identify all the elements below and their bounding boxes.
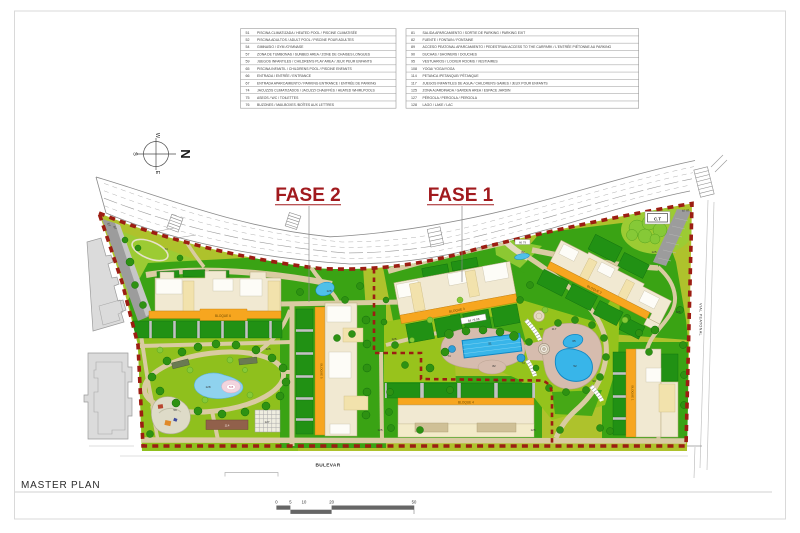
svg-text:PISCINA ADULTOS / ADULT POOL: PISCINA ADULTOS / ADULT POOL / PISCINE P…: [257, 38, 355, 42]
svg-text:108: 108: [411, 67, 417, 71]
svg-text:10: 10: [302, 500, 307, 505]
svg-text:74: 74: [447, 354, 451, 358]
svg-text:66 79: 66 79: [519, 241, 526, 245]
svg-text:51: 51: [488, 342, 492, 346]
svg-text:YOGA/ YOGA/YOGA: YOGA/ YOGA/YOGA: [423, 67, 456, 71]
svg-text:ENTRADA / ENTRÉE / ENTRANCE: ENTRADA / ENTRÉE / ENTRANCE: [257, 73, 312, 78]
svg-text:PISCINA CLIMATIZADA / HEATED: PISCINA CLIMATIZADA / HEATED POOL / PISC…: [257, 30, 358, 35]
svg-text:127: 127: [411, 96, 417, 100]
svg-text:ACCESO PEATONAL APARCAMIENTO /: ACCESO PEATONAL APARCAMIENTO / PEDESTRIA…: [423, 44, 612, 49]
svg-text:90: 90: [592, 379, 596, 383]
svg-text:PISCINA INFANTIL / CHILDRENS P: PISCINA INFANTIL / CHILDRENS POOL / PISC…: [257, 67, 352, 71]
svg-text:FASE 1: FASE 1: [428, 185, 494, 206]
svg-text:125: 125: [651, 250, 656, 254]
svg-text:C.T: C.T: [654, 216, 661, 221]
svg-text:52: 52: [573, 364, 577, 368]
svg-text:JUEGOS INFANTILES / CHILDREN'S: JUEGOS INFANTILES / CHILDREN'S PLAY AREA…: [257, 60, 373, 64]
svg-text:89: 89: [411, 45, 415, 49]
svg-text:74: 74: [164, 247, 168, 251]
svg-text:S: S: [132, 152, 138, 156]
svg-text:BLOQUE 1: BLOQUE 1: [631, 385, 635, 400]
svg-text:82: 82: [411, 38, 415, 42]
svg-text:117: 117: [552, 327, 557, 331]
svg-text:SALIDA APARCAMIENTO / SORTIE D: SALIDA APARCAMIENTO / SORTIE DE PARKING …: [423, 31, 526, 35]
svg-text:127: 127: [264, 420, 269, 424]
svg-text:JACUZZIS CLIMATIZADOS / JACUZZ: JACUZZIS CLIMATIZADOS / JACUZZI CHAUFFÉS…: [257, 88, 376, 93]
svg-text:BULEVAR: BULEVAR: [316, 463, 341, 469]
svg-text:65: 65: [246, 67, 250, 71]
svg-text:67: 67: [246, 81, 250, 85]
svg-text:ASEOS / WC / TOILETTES: ASEOS / WC / TOILETTES: [257, 96, 299, 100]
svg-text:66: 66: [246, 74, 250, 78]
svg-text:76: 76: [246, 103, 250, 107]
svg-text:95: 95: [411, 60, 415, 64]
svg-text:125: 125: [530, 428, 535, 432]
svg-text:GIMNASIO / GYM /GYMNASE: GIMNASIO / GYM /GYMNASE: [257, 45, 304, 49]
svg-text:BLOQUE 5: BLOQUE 5: [320, 363, 324, 378]
svg-text:82: 82: [492, 364, 496, 368]
svg-text:125: 125: [675, 310, 680, 314]
svg-text:128: 128: [326, 289, 331, 293]
svg-text:114: 114: [225, 424, 230, 428]
svg-text:PETANCA /PETANQUE/ PÉTANQUE: PETANCA /PETANQUE/ PÉTANQUE: [423, 73, 480, 78]
svg-text:82: 82: [521, 250, 525, 254]
svg-text:125: 125: [411, 89, 417, 93]
svg-text:57: 57: [246, 53, 250, 57]
svg-text:50: 50: [412, 500, 417, 505]
svg-text:LAGO / LAKE / LAC: LAGO / LAKE / LAC: [423, 103, 454, 107]
svg-text:128: 128: [411, 103, 417, 107]
svg-text:ZONA AJARDINADA / GARDEN AREA: ZONA AJARDINADA / GARDEN AREA / ESPACE J…: [423, 89, 511, 93]
svg-text:117: 117: [411, 81, 417, 85]
svg-text:125: 125: [265, 347, 270, 351]
svg-text:W: W: [154, 133, 160, 139]
svg-text:114: 114: [411, 74, 417, 78]
svg-text:ZONA DE TUMBONAS / SUNBED AREA: ZONA DE TUMBONAS / SUNBED AREA / ZONE DE…: [257, 53, 371, 57]
svg-text:508: 508: [229, 385, 234, 389]
svg-text:VIAL PEATONAL: VIAL PEATONAL: [699, 303, 703, 336]
svg-text:FUENTE / FONTAIN / FONTAINE: FUENTE / FONTAIN / FONTAINE: [423, 38, 474, 42]
svg-text:E: E: [154, 171, 160, 175]
svg-text:90: 90: [411, 53, 415, 57]
svg-text:PÉRGOLA / PERGOLA / PERGOLA: PÉRGOLA / PERGOLA / PERGOLA: [423, 95, 478, 100]
svg-text:20: 20: [329, 500, 334, 505]
svg-text:59: 59: [246, 60, 250, 64]
svg-text:125: 125: [377, 428, 382, 432]
svg-text:BLOQUE 6: BLOQUE 6: [215, 314, 231, 318]
svg-text:N: N: [178, 149, 193, 158]
svg-text:52: 52: [246, 38, 250, 42]
svg-text:FASE 2: FASE 2: [275, 185, 340, 206]
svg-text:75: 75: [246, 96, 250, 100]
svg-text:67: 67: [495, 379, 499, 383]
svg-text:90: 90: [539, 327, 543, 331]
svg-text:81: 81: [411, 31, 415, 35]
svg-text:JUEGOS INFANTILES DE AGUA / CH: JUEGOS INFANTILES DE AGUA / CHILDREN'S G…: [423, 81, 549, 85]
svg-text:MASTER PLAN: MASTER PLAN: [21, 480, 100, 491]
svg-text:DUCHAS / SHOWERS / DOUCHES: DUCHAS / SHOWERS / DOUCHES: [423, 53, 478, 57]
svg-text:54: 54: [246, 45, 250, 49]
svg-text:65: 65: [572, 339, 576, 343]
svg-text:BLOQUE 4: BLOQUE 4: [458, 400, 474, 404]
svg-text:74: 74: [521, 361, 525, 365]
svg-text:BUZONES / MAILBOXES /BOÎTES AU: BUZONES / MAILBOXES /BOÎTES AUX LETTRES: [257, 103, 335, 107]
svg-text:ENTRADA APARCAMIENTO / PARKING: ENTRADA APARCAMIENTO / PARKING ENTRANCE …: [257, 80, 377, 85]
svg-text:128: 128: [205, 385, 210, 389]
svg-text:125: 125: [391, 337, 396, 341]
svg-text:59: 59: [173, 408, 177, 412]
svg-text:VESTUARIOS / LOCKER ROOMS / VE: VESTUARIOS / LOCKER ROOMS / VESTIAIRES: [423, 60, 499, 64]
svg-text:51: 51: [246, 31, 250, 35]
svg-text:74: 74: [246, 89, 250, 93]
